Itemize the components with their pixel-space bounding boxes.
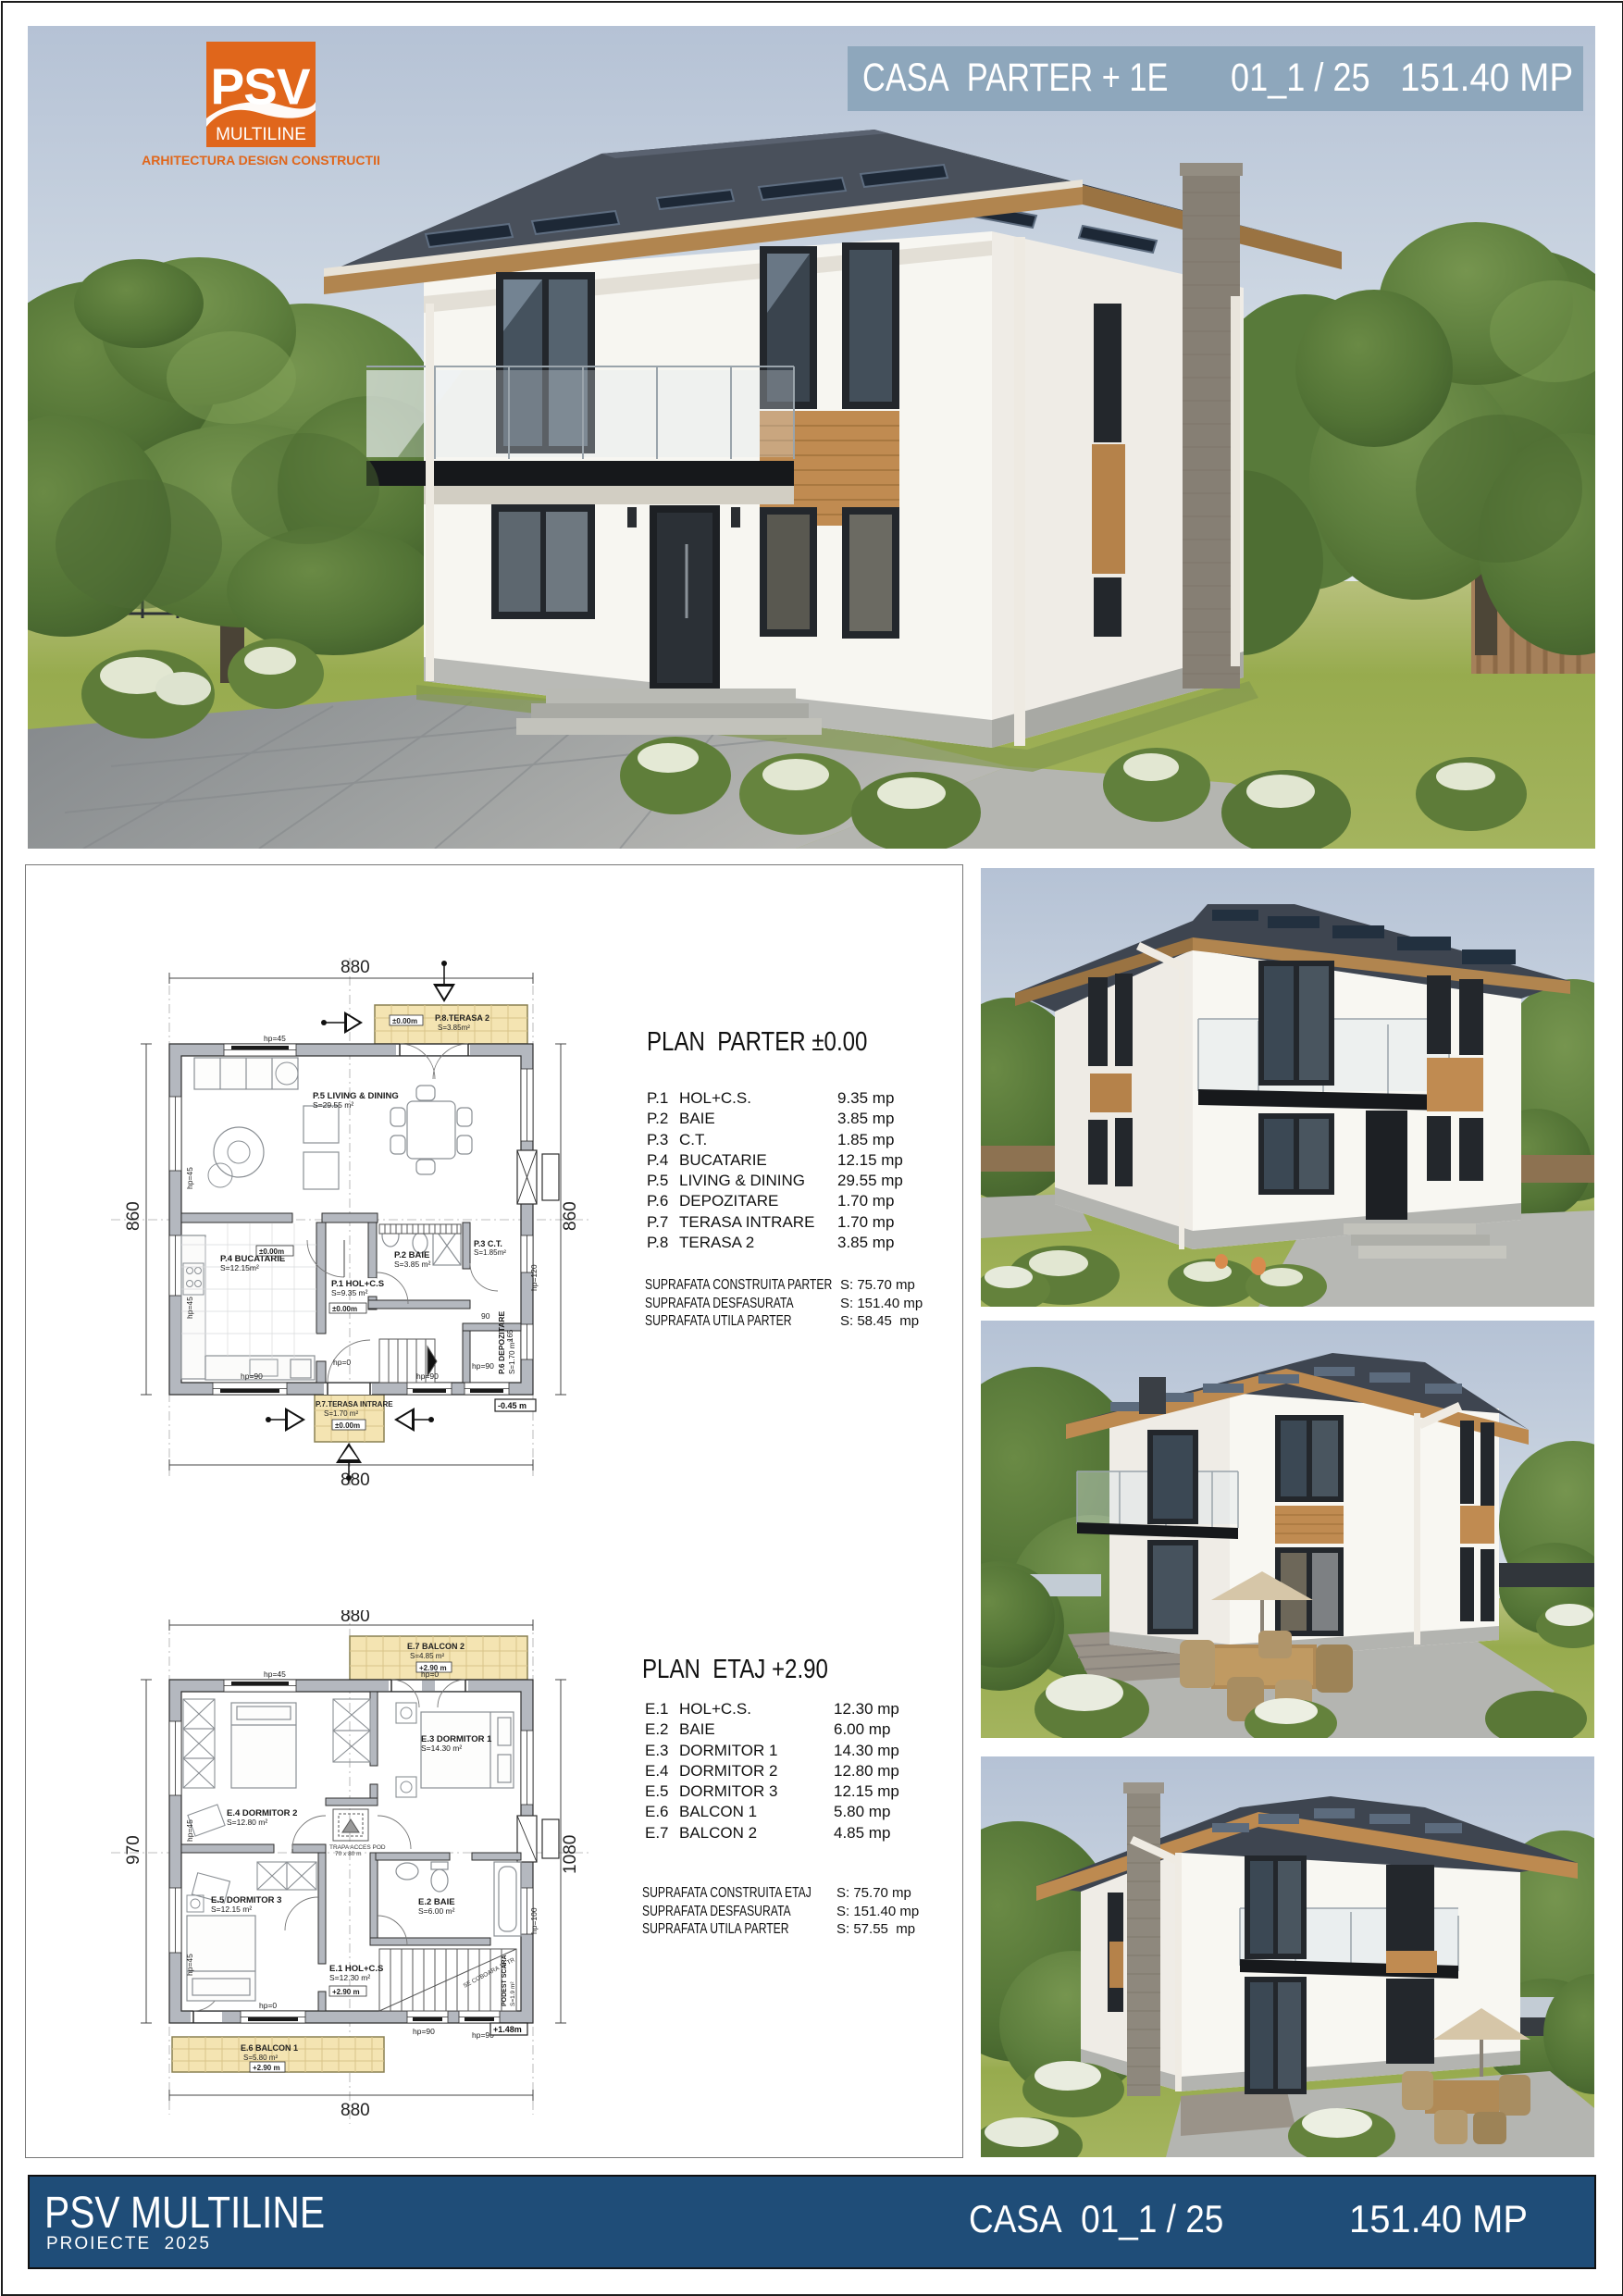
svg-text:hp=90: hp=90: [241, 1371, 263, 1381]
svg-text:PODEST SCARA: PODEST SCARA: [502, 1955, 508, 2006]
svg-text:S=3.85 m²: S=3.85 m²: [394, 1260, 431, 1269]
svg-text:P.7.TERASA INTRARE: P.7.TERASA INTRARE: [316, 1400, 393, 1409]
svg-text:hp=0: hp=0: [259, 2001, 277, 2010]
svg-text:70 x 80 m: 70 x 80 m: [335, 1851, 362, 1857]
svg-text:S=12.15 m²: S=12.15 m²: [211, 1905, 252, 1914]
svg-text:S=12.30 m²: S=12.30 m²: [329, 1973, 370, 1982]
svg-text:S=5.80 m²: S=5.80 m²: [243, 2054, 278, 2062]
svg-text:90: 90: [481, 1311, 490, 1321]
svg-text:S=1.85m²: S=1.85m²: [474, 1248, 506, 1257]
svg-text:S=4.85 m²: S=4.85 m²: [410, 1652, 444, 1660]
svg-text:165: 165: [506, 1329, 514, 1342]
svg-text:E.6 BALCON 1: E.6 BALCON 1: [241, 2043, 298, 2053]
svg-text:S=1.9 m²: S=1.9 m²: [510, 1981, 516, 2006]
svg-text:±0.00m: ±0.00m: [332, 1305, 357, 1313]
svg-text:-0.45 m: -0.45 m: [498, 1401, 527, 1410]
svg-text:hp=90: hp=90: [413, 2027, 435, 2036]
svg-text:S=12.80 m²: S=12.80 m²: [227, 1818, 267, 1827]
svg-text:hp=100: hp=100: [529, 1907, 539, 1934]
svg-text:ARHITECTURA DESIGN CONSTRUCTII: ARHITECTURA DESIGN CONSTRUCTII: [142, 153, 380, 168]
svg-text:970: 970: [124, 1835, 143, 1865]
svg-text:MULTILINE: MULTILINE: [216, 125, 306, 144]
svg-text:hp=45: hp=45: [264, 1034, 286, 1043]
svg-text:S=3.85m²: S=3.85m²: [438, 1024, 470, 1032]
svg-text:880: 880: [341, 958, 370, 977]
svg-text:S=14.30 m²: S=14.30 m²: [421, 1744, 462, 1753]
svg-text:880: 880: [341, 1610, 370, 1626]
svg-text:S=6.00 m²: S=6.00 m²: [418, 1906, 455, 1916]
svg-text:hp=45: hp=45: [185, 1954, 194, 1976]
svg-text:S=1.70 m²: S=1.70 m²: [324, 1409, 358, 1418]
svg-text:+2.90 m: +2.90 m: [253, 2064, 280, 2072]
svg-text:880: 880: [341, 2101, 370, 2120]
svg-text:S=1.70 m²: S=1.70 m²: [508, 1340, 516, 1374]
svg-text:hp=90: hp=90: [472, 1361, 494, 1371]
svg-text:P.8.TERASA 2: P.8.TERASA 2: [435, 1013, 489, 1023]
svg-text:S=9.35 m²: S=9.35 m²: [331, 1288, 368, 1297]
svg-text:hp=45: hp=45: [185, 1167, 194, 1189]
svg-text:hp=45: hp=45: [185, 1297, 194, 1319]
svg-text:S=29.55 m²: S=29.55 m²: [313, 1100, 353, 1110]
svg-text:TRAPA ACCES POD: TRAPA ACCES POD: [329, 1844, 386, 1851]
svg-text:hp=120: hp=120: [529, 1264, 539, 1291]
svg-text:hp=90: hp=90: [416, 1371, 439, 1381]
svg-text:hp=0: hp=0: [333, 1358, 351, 1367]
svg-text:860: 860: [561, 1201, 580, 1231]
svg-text:+1.48m: +1.48m: [493, 2025, 522, 2034]
svg-text:860: 860: [124, 1201, 143, 1231]
svg-text:PSV: PSV: [210, 58, 310, 116]
svg-text:880: 880: [341, 1471, 370, 1490]
svg-text:1080: 1080: [561, 1835, 580, 1874]
svg-text:P.3 C.T.: P.3 C.T.: [474, 1239, 502, 1248]
svg-text:hp=45: hp=45: [264, 1669, 286, 1679]
svg-text:hp=45: hp=45: [185, 1819, 194, 1842]
svg-text:±0.00m: ±0.00m: [335, 1421, 360, 1430]
svg-text:E.7 BALCON 2: E.7 BALCON 2: [407, 1642, 465, 1651]
svg-text:±0.00m: ±0.00m: [259, 1247, 284, 1256]
svg-text:S=12.15m²: S=12.15m²: [220, 1263, 259, 1272]
svg-text:+2.90 m: +2.90 m: [332, 1988, 360, 1996]
svg-text:P.6 DEPOZITARE: P.6 DEPOZITARE: [497, 1310, 506, 1374]
svg-text:±0.00m: ±0.00m: [392, 1017, 417, 1025]
svg-text:hp=0: hp=0: [421, 1669, 439, 1679]
